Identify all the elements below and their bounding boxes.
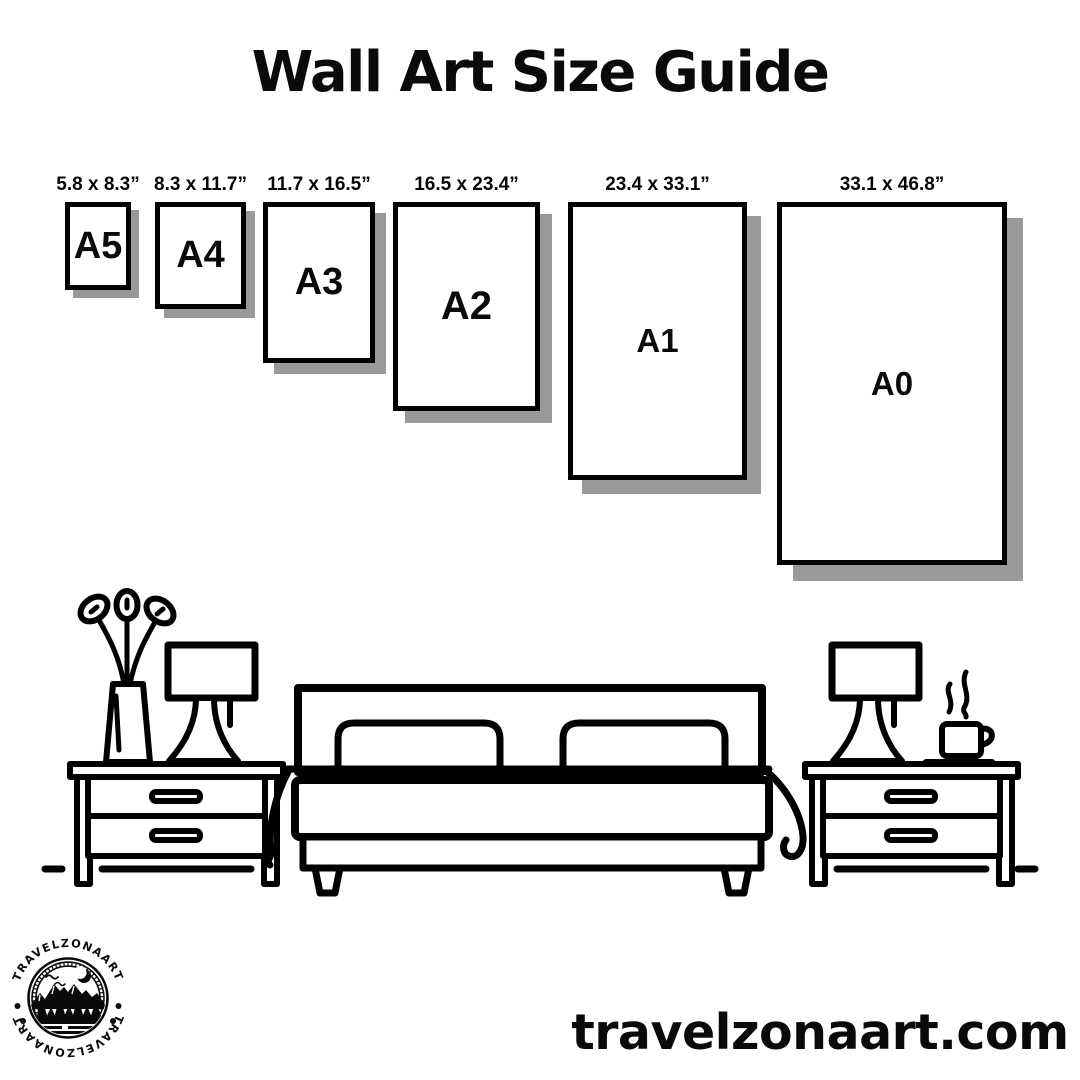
dimension-label-a3: 11.7 x 16.5” [267,174,371,196]
dimension-label-a2: 16.5 x 23.4” [414,174,519,196]
double-bed-icon [268,688,803,893]
size-option-a2: 16.5 x 23.4” A2 [393,174,540,411]
bed-leg-left [315,868,340,893]
poster-frame-a3: A3 [263,202,375,363]
size-option-a1: 23.4 x 33.1” A1 [568,174,747,480]
size-option-a5: 5.8 x 8.3” A5 [65,174,131,290]
size-option-a0: 33.1 x 46.8” A0 [777,174,1007,565]
poster-frame-a2: A2 [393,202,540,411]
size-name-a3: A3 [295,261,344,304]
poster-frame-a5: A5 [65,202,131,290]
dimension-label-a5: 5.8 x 8.3” [56,174,139,196]
dimension-label-a0: 33.1 x 46.8” [840,174,945,196]
size-name-a5: A5 [74,225,123,268]
table-lamp-icon [832,645,919,761]
coffee-cup-icon [926,672,992,762]
logo-dot [110,1018,116,1024]
plant-vase-icon [76,591,179,762]
page-title: Wall Art Size Guide [0,40,1080,105]
size-option-a3: 11.7 x 16.5” A3 [263,174,375,363]
table-lamp-icon [168,645,255,761]
size-guide-poster: Wall Art Size Guide 5.8 x 8.3” A5 8.3 x … [0,0,1080,1080]
bedroom-scene-illustration [40,588,1040,900]
brand-logo: TRAVELZONAART TRAVELZONAART [4,934,132,1062]
mattress [295,780,769,837]
bed-leg-right [724,868,749,893]
size-name-a4: A4 [176,234,225,277]
poster-frame-a1: A1 [568,202,747,480]
logo-dot [116,1003,122,1009]
poster-frame-a0: A0 [777,202,1007,565]
bed-base [303,837,761,868]
nightstand-icon [70,764,283,884]
logo-dot [15,1003,21,1009]
size-name-a0: A0 [871,365,913,403]
size-option-a4: 8.3 x 11.7” A4 [155,174,246,309]
logo-dot [20,1018,26,1024]
size-name-a1: A1 [636,322,678,360]
website-url: travelzonaart.com [560,1004,1080,1061]
dimension-label-a1: 23.4 x 33.1” [605,174,710,196]
bird-icon [55,983,65,986]
poster-frame-a4: A4 [155,202,246,309]
size-name-a2: A2 [441,284,492,329]
bird-icon [46,975,58,979]
water-stripe [32,1021,102,1024]
logo-arc-text-top: TRAVELZONAART [10,937,126,983]
nightstand-icon [805,764,1018,884]
moon-crescent-cut [74,966,87,979]
dimension-label-a4: 8.3 x 11.7” [154,174,247,196]
